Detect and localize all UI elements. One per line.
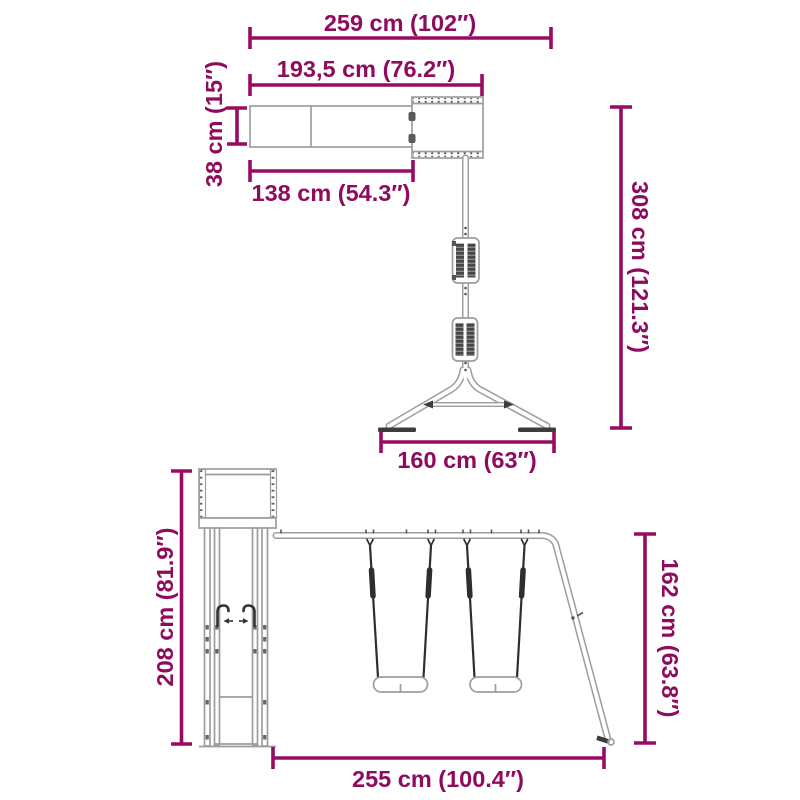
dim-label-monkey-bar-length: 138 cm (54.3″) xyxy=(252,180,411,206)
dim-label-swing-frame-height: 162 cm (63.8″) xyxy=(657,559,683,718)
dim-label-tower-height: 208 cm (81.9″) xyxy=(152,528,178,687)
dimension-beam-length: 193,5 cm (76.2″) xyxy=(250,56,482,96)
swing-hanger-icon xyxy=(464,540,470,546)
swing-seat-right xyxy=(464,540,528,693)
handle-arrow-icon xyxy=(224,618,230,623)
roof-bracket-icon xyxy=(409,134,416,143)
climbing-grip-upper xyxy=(452,238,479,283)
climbing-grip-lower xyxy=(453,318,478,361)
playset-dimension-svg: 259 cm (102″) 193,5 cm (76.2″) 38 cm (15… xyxy=(0,0,800,800)
ground-foot xyxy=(518,428,556,433)
swing-hanger-icon xyxy=(428,540,434,546)
dimension-base-width: 160 cm (63″) xyxy=(381,431,554,473)
dim-label-beam-depth: 38 cm (15″) xyxy=(201,61,227,187)
dimension-beam-depth: 38 cm (15″) xyxy=(201,61,247,187)
play-tower xyxy=(199,469,277,747)
ground-foot xyxy=(378,428,416,433)
roof-bracket-icon xyxy=(409,112,416,121)
dimension-swing-frame-height: 162 cm (63.8″) xyxy=(634,534,683,743)
slide-handles xyxy=(218,606,255,627)
swing-seat-left xyxy=(367,540,434,693)
dim-label-overall-length: 308 cm (121.3″) xyxy=(627,181,653,353)
dim-label-overall-width: 259 cm (102″) xyxy=(324,10,476,36)
dimension-monkey-bar-length: 138 cm (54.3″) xyxy=(250,160,413,206)
monkey-bar-beam-top-view xyxy=(250,106,413,147)
swing-hanger-icon xyxy=(367,540,373,546)
dimension-overall-width: 259 cm (102″) xyxy=(250,10,551,49)
dim-label-swing-section-width: 255 cm (100.4″) xyxy=(352,766,524,792)
handle-arrow-icon xyxy=(243,618,249,623)
dimension-tower-height: 208 cm (81.9″) xyxy=(152,471,192,744)
dimension-diagram: 259 cm (102″) 193,5 cm (76.2″) 38 cm (15… xyxy=(0,0,800,800)
dimension-overall-length: 308 cm (121.3″) xyxy=(610,107,653,428)
swing-frame xyxy=(276,530,614,746)
dim-label-base-width: 160 cm (63″) xyxy=(397,447,536,473)
dim-label-beam-length: 193,5 cm (76.2″) xyxy=(277,56,455,82)
dimension-swing-section-width: 255 cm (100.4″) xyxy=(273,747,604,792)
swing-hanger-icon xyxy=(522,540,528,546)
tower-roof-top-view xyxy=(409,97,484,158)
